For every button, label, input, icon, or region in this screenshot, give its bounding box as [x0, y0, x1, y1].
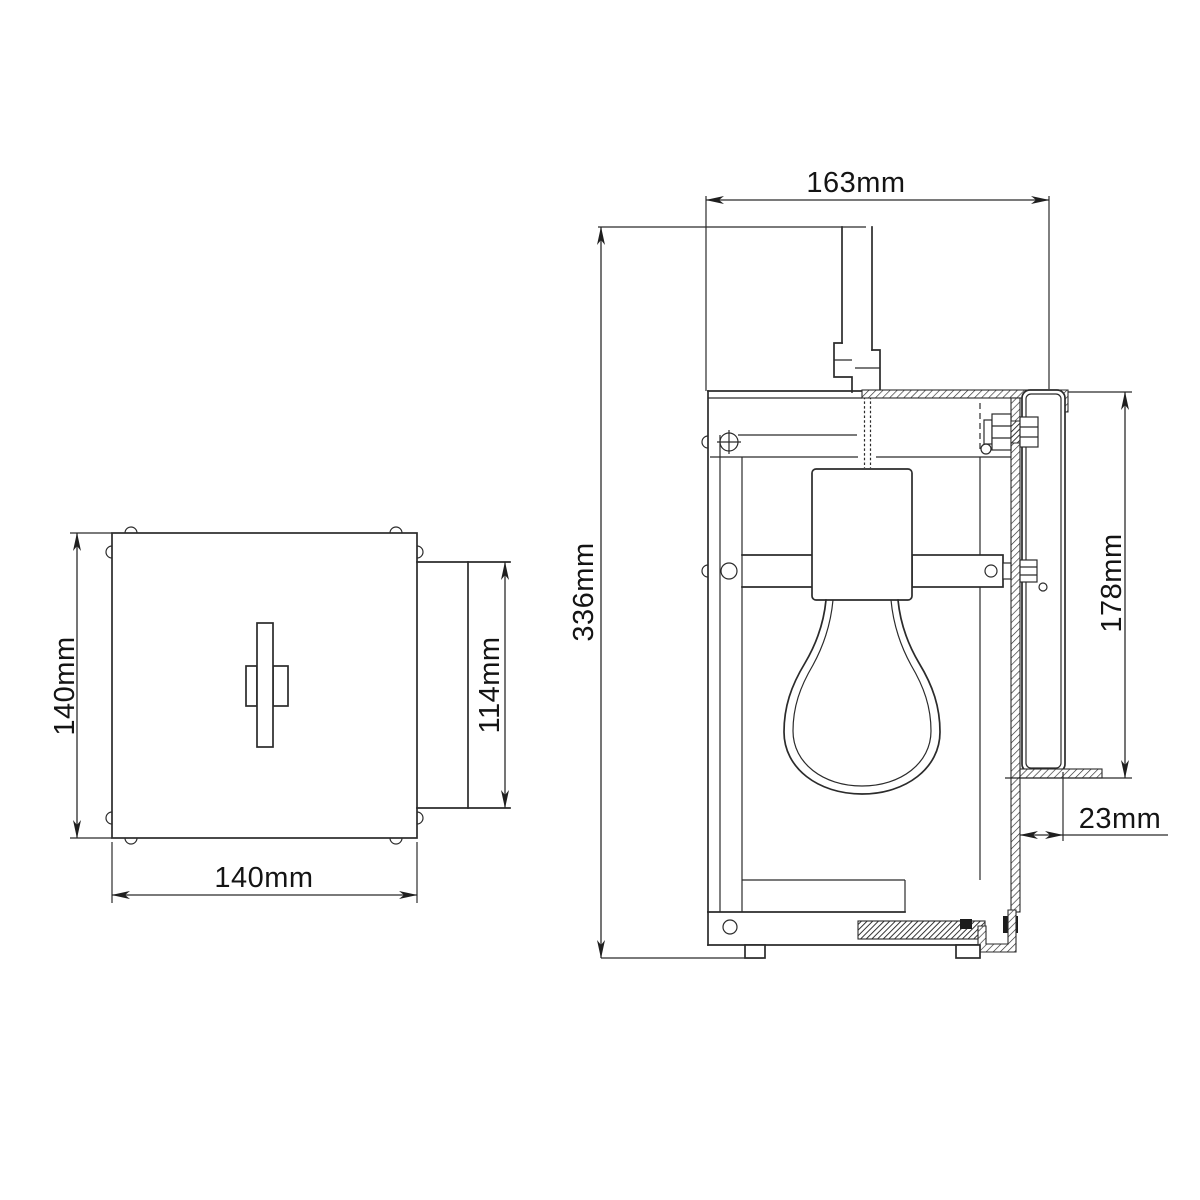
bolt-nut [992, 414, 1011, 450]
bolt-washer-icon [981, 444, 991, 454]
dimension-plan-width: 140mm [112, 842, 417, 903]
bracket-bottom-flange [1020, 769, 1102, 778]
mounting-stem [834, 227, 880, 468]
light-bulb [784, 600, 940, 794]
stem-coupler-right [872, 350, 880, 390]
dimension-bracket-depth: 23mm [1020, 772, 1168, 841]
plan-view: 140mm 140mm 114mm [49, 527, 510, 903]
screw-bump-icon [106, 812, 112, 824]
bolt-shaft-section [1011, 421, 1020, 443]
lantern-foot [956, 945, 980, 958]
socket-and-arm [742, 469, 1003, 600]
wall-bracket-plate [1020, 390, 1102, 778]
frame-screw-icon [721, 563, 737, 579]
bolt-nut [1020, 417, 1038, 447]
arm-end-block [912, 555, 1003, 587]
lantern-foot [745, 945, 765, 958]
drawing-canvas: 140mm 140mm 114mm 336mm 163mm [0, 0, 1200, 1200]
screw-bump-icon [417, 812, 423, 824]
dimension-plan-depth: 114mm [474, 562, 506, 808]
glass-height-label: 178mm [1096, 533, 1128, 632]
bottom-corner-curl [978, 910, 1016, 952]
cross-vertical-bar [257, 623, 273, 747]
screw-bump-icon [390, 527, 402, 533]
bottom-screw-icon [723, 920, 737, 934]
dimension-top-width: 163mm [706, 167, 1049, 391]
cross-left-tab [246, 666, 257, 706]
bottom-fastener [960, 919, 972, 929]
bolt-washer [984, 420, 992, 444]
lantern-dimension-drawing: 140mm 140mm 114mm 336mm 163mm [0, 0, 1200, 1200]
lantern-bottom [708, 880, 1018, 958]
overall-height-label: 336mm [568, 542, 600, 641]
plan-width-label: 140mm [214, 862, 313, 894]
top-width-label: 163mm [806, 167, 905, 199]
stem-coupler-left [834, 343, 852, 392]
frame-right-wall-section [1011, 398, 1020, 912]
dimension-plan-height: 140mm [49, 533, 112, 838]
bolt-nut [1020, 560, 1037, 582]
screw-bump-icon [125, 527, 137, 533]
middle-bolt-assembly [1003, 560, 1037, 582]
bulb-inner-outline [793, 600, 931, 786]
screw-bump-icon [702, 436, 708, 448]
screw-bump-icon [702, 565, 708, 577]
bolt-shaft [1003, 563, 1011, 579]
screw-bump-icon [417, 546, 423, 558]
plan-height-label: 140mm [49, 636, 81, 735]
lamp-socket [812, 469, 912, 600]
cross-right-tab [273, 666, 288, 706]
screw-bump-icon [390, 838, 402, 844]
top-plate-hatched-section [862, 390, 1049, 398]
mounting-cross [246, 623, 288, 747]
plan-depth-label: 114mm [474, 636, 506, 733]
screw-bump-icon [125, 838, 137, 844]
bracket-depth-label: 23mm [1079, 803, 1162, 835]
side-elevation-view: 336mm 163mm [568, 167, 1168, 958]
screw-bump-icon [106, 546, 112, 558]
